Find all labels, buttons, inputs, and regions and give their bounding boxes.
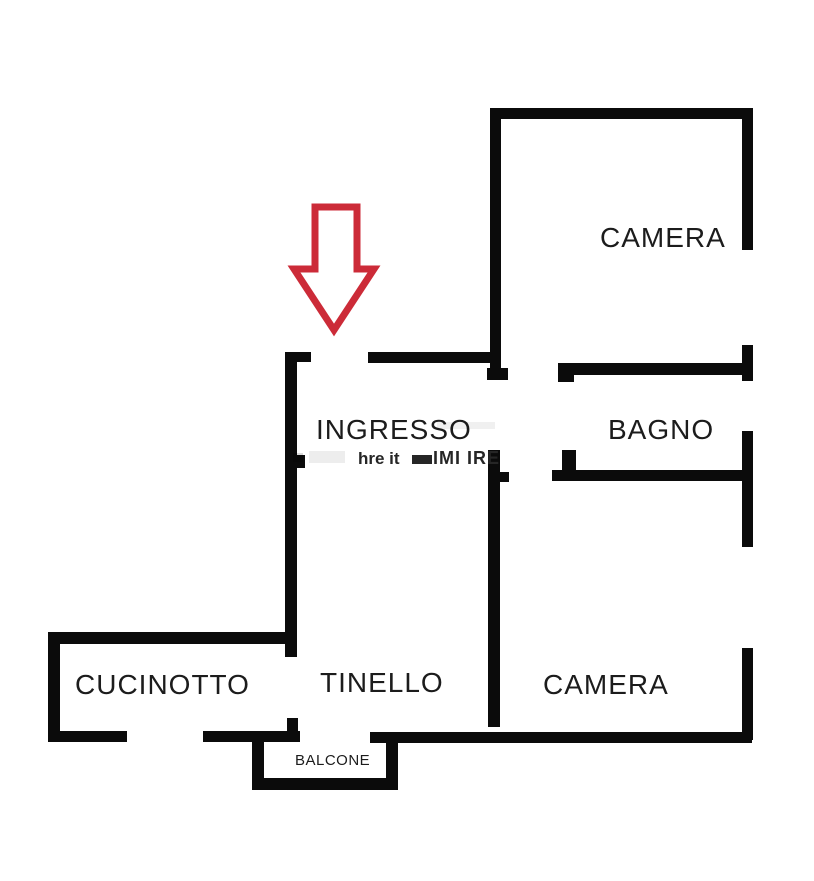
wall-camera-bagno-divider — [558, 363, 752, 375]
room-label-camera-bottom: CAMERA — [543, 671, 669, 699]
room-label-bagno: BAGNO — [608, 416, 714, 444]
wall-jamb-divider-left — [558, 363, 574, 382]
wall-balcone-east — [386, 732, 398, 790]
wall-east-segment-4 — [742, 648, 753, 740]
wall-corridor-foot-stub — [487, 368, 508, 380]
floor-plan: CAMERA BAGNO INGRESSO CUCINOTTO TINELLO … — [0, 0, 814, 881]
watermark-ghost-mark-1 — [293, 453, 303, 462]
wall-ingresso-north — [368, 352, 501, 363]
wall-east-segment-1 — [742, 108, 753, 250]
wall-corridor-lower — [488, 450, 500, 727]
wall-tinello-west-stub — [287, 718, 298, 733]
wall-camera-top-north — [490, 108, 752, 119]
watermark-bar — [412, 455, 432, 464]
wall-balcone-south — [252, 778, 398, 790]
room-label-camera-top: CAMERA — [600, 224, 726, 252]
wall-bagno-door-jamb — [562, 450, 576, 472]
room-label-tinello: TINELLO — [320, 669, 444, 697]
room-label-balcone: BALCONE — [295, 753, 370, 768]
wall-corridor-stub-right — [499, 472, 509, 482]
wall-cucinotto-south-left — [48, 731, 127, 742]
wall-ingresso-west — [285, 352, 297, 657]
entrance-arrow-icon — [280, 195, 390, 345]
watermark-ghost-dashes — [437, 422, 495, 429]
watermark-ghost-mark-2 — [309, 451, 345, 463]
wall-bagno-south — [552, 470, 747, 481]
watermark-text-2: IMI IRE — [433, 449, 500, 467]
wall-south-outer — [370, 732, 752, 743]
watermark-text-1: hre it — [358, 450, 400, 467]
wall-cucinotto-north — [48, 632, 295, 644]
room-label-cucinotto: CUCINOTTO — [75, 671, 250, 699]
wall-cucinotto-west — [48, 632, 60, 742]
wall-east-segment-3 — [742, 431, 753, 547]
wall-cucinotto-south-right — [203, 731, 300, 742]
room-label-ingresso: INGRESSO — [316, 416, 472, 444]
wall-corridor-upper-west — [490, 108, 501, 380]
